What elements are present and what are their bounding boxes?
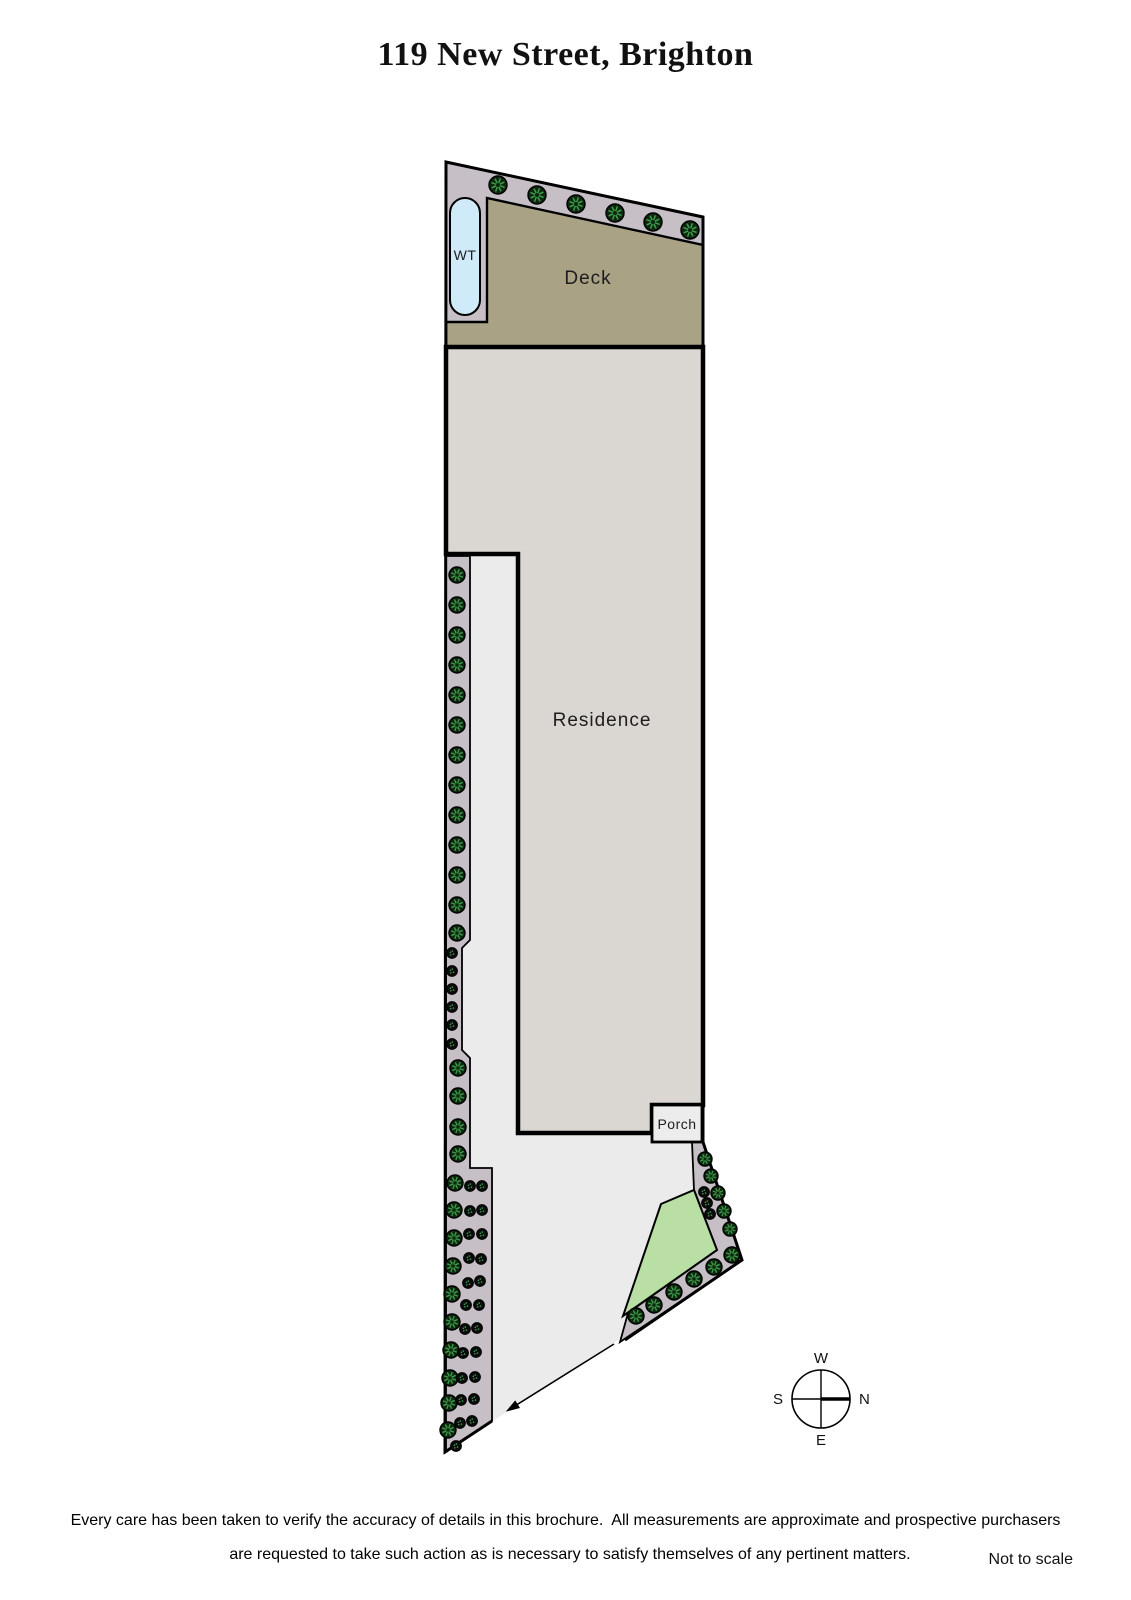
shrub-icon [477, 1181, 488, 1192]
tree-icon [449, 747, 465, 763]
tree-icon [711, 1186, 725, 1200]
disclaimer-text: Every care has been taken to verify the … [0, 1512, 1131, 1563]
shrub-icon [447, 966, 458, 977]
shrub-icon [460, 1324, 471, 1335]
compass-west-label: W [814, 1350, 829, 1367]
shrub-icon [474, 1300, 485, 1311]
shrub-icon [475, 1276, 486, 1287]
shrub-icon [699, 1187, 710, 1198]
compass-north-label: N [859, 1391, 870, 1408]
tree-icon [646, 1297, 662, 1313]
tree-icon [449, 837, 465, 853]
tree-icon [723, 1222, 737, 1236]
tree-icon [698, 1152, 712, 1166]
shrub-icon [467, 1416, 478, 1427]
tree-icon [450, 1119, 466, 1135]
shrub-icon [458, 1348, 469, 1359]
tree-icon [449, 627, 465, 643]
porch-label: Porch [657, 1116, 696, 1132]
tree-icon [450, 1060, 466, 1076]
water-tank-label: WT [454, 247, 477, 263]
tree-icon [450, 1146, 466, 1162]
tree-icon [567, 195, 585, 213]
tree-icon [681, 221, 699, 239]
tree-icon [446, 1202, 462, 1218]
tree-icon [706, 1259, 722, 1275]
deck-label: Deck [564, 268, 611, 289]
shrub-icon [705, 1209, 716, 1220]
tree-icon [644, 213, 662, 231]
tree-icon [704, 1169, 718, 1183]
shrub-icon [447, 984, 458, 995]
tree-icon [724, 1247, 740, 1263]
tree-icon [449, 687, 465, 703]
shrub-icon [455, 1418, 466, 1429]
tree-icon [444, 1286, 460, 1302]
tree-icon [445, 1258, 461, 1274]
shrub-icon [470, 1372, 481, 1383]
tree-icon [606, 204, 624, 222]
tree-icon [447, 1175, 463, 1191]
shrub-icon [447, 1020, 458, 1031]
shrub-icon [451, 1441, 462, 1452]
residence-label: Residence [553, 710, 652, 731]
tree-icon [450, 1088, 466, 1104]
tree-icon [442, 1370, 458, 1386]
brochure-page: 119 New Street, Brighton DeckResidencePo… [0, 0, 1131, 1600]
shrub-icon [447, 948, 458, 959]
shrub-icon [457, 1373, 468, 1384]
shrub-icon [702, 1198, 713, 1209]
shrub-icon [464, 1229, 475, 1240]
tree-icon [449, 777, 465, 793]
tree-icon [449, 925, 465, 941]
tree-icon [443, 1342, 459, 1358]
shrub-icon [456, 1395, 467, 1406]
tree-icon [449, 897, 465, 913]
tree-icon [441, 1395, 457, 1411]
tree-icon [449, 717, 465, 733]
compass-south-label: S [773, 1391, 783, 1408]
shrub-icon [472, 1323, 483, 1334]
tree-icon [444, 1314, 460, 1330]
tree-icon [440, 1422, 456, 1438]
tree-icon [489, 176, 507, 194]
tree-icon [449, 657, 465, 673]
shrub-icon [447, 1002, 458, 1013]
shrub-icon [465, 1181, 476, 1192]
shrub-icon [477, 1229, 488, 1240]
shrub-icon [463, 1278, 474, 1289]
shrub-icon [477, 1205, 488, 1216]
shrub-icon [469, 1394, 480, 1405]
shrub-icon [476, 1254, 487, 1265]
tree-icon [446, 1230, 462, 1246]
compass: WESN [773, 1350, 870, 1449]
scale-note: Not to scale [989, 1551, 1073, 1569]
tree-icon [717, 1204, 731, 1218]
disclaimer-line-1: Every care has been taken to verify the … [71, 1512, 1061, 1529]
tree-icon [449, 567, 465, 583]
compass-east-label: E [816, 1432, 826, 1449]
shrub-icon [447, 1039, 458, 1050]
tree-icon [449, 867, 465, 883]
shrub-icon [465, 1206, 476, 1217]
tree-icon [686, 1271, 702, 1287]
site-plan: DeckResidencePorchWTWESN [0, 0, 1131, 1600]
tree-icon [449, 597, 465, 613]
shrub-icon [464, 1253, 475, 1264]
tree-icon [528, 186, 546, 204]
tree-icon [628, 1308, 644, 1324]
disclaimer-line-2: are requested to take such action as is … [229, 1546, 910, 1563]
shrub-icon [471, 1347, 482, 1358]
tree-icon [666, 1284, 682, 1300]
tree-icon [449, 807, 465, 823]
shrub-icon [461, 1300, 472, 1311]
